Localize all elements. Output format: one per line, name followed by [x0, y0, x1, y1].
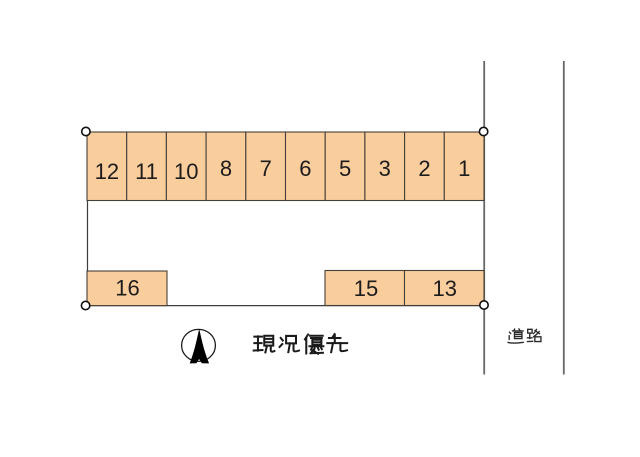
svg-text:5: 5: [339, 156, 351, 181]
svg-text:11: 11: [135, 159, 158, 184]
svg-text:3: 3: [379, 156, 391, 181]
svg-text:7: 7: [260, 156, 272, 181]
svg-text:15: 15: [354, 276, 378, 301]
svg-text:2: 2: [418, 156, 430, 181]
svg-text:6: 6: [299, 156, 311, 181]
svg-text:1: 1: [458, 156, 470, 181]
svg-text:12: 12: [95, 159, 119, 184]
svg-text:8: 8: [220, 156, 232, 181]
svg-text:16: 16: [115, 276, 139, 301]
svg-text:13: 13: [433, 276, 457, 301]
svg-text:10: 10: [174, 159, 198, 184]
